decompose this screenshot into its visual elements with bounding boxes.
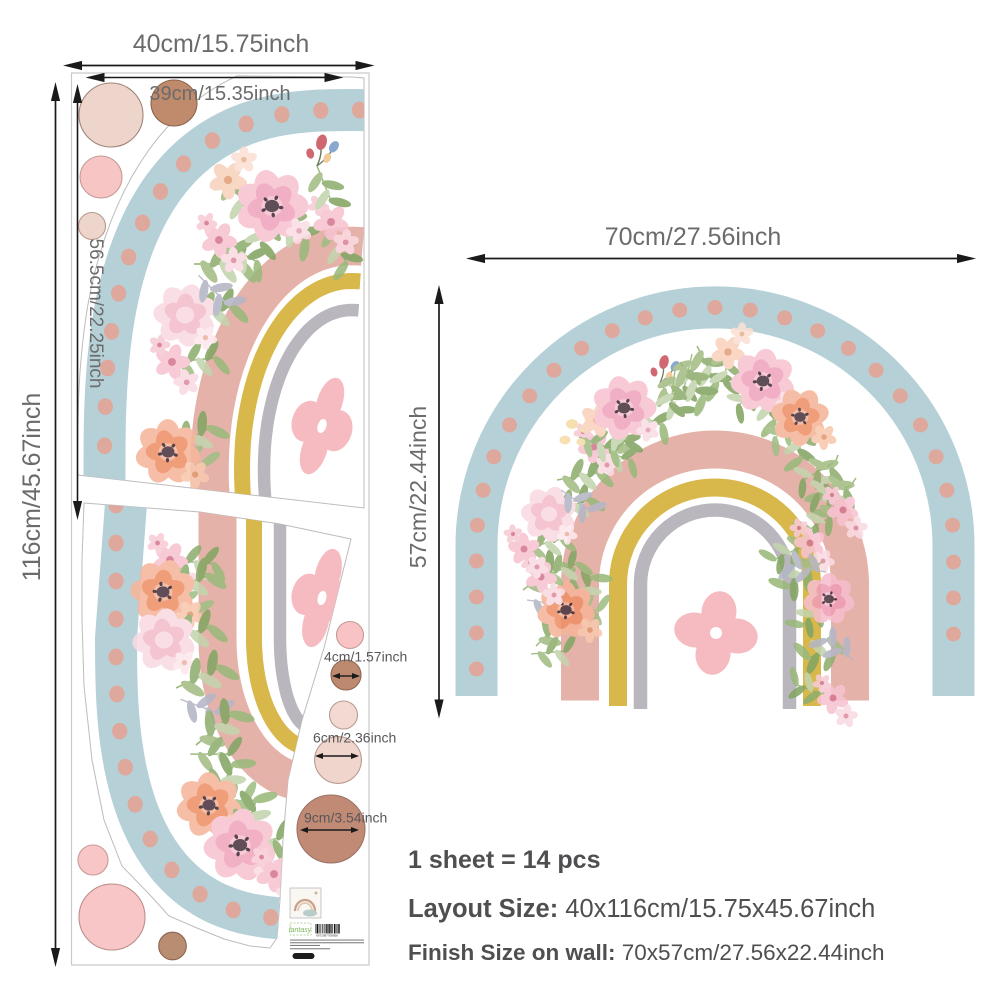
- svg-text:1 sheet = 14 pcs: 1 sheet = 14 pcs: [408, 846, 600, 874]
- svg-text:70cm/27.56inch: 70cm/27.56inch: [605, 223, 782, 251]
- svg-text:6972087708958: 6972087708958: [316, 934, 338, 938]
- svg-text:Layout Size: 40x116cm/15.75x45: Layout Size: 40x116cm/15.75x45.67inch: [408, 895, 875, 923]
- svg-text:57cm/22.44inch: 57cm/22.44inch: [405, 406, 431, 568]
- svg-text:39cm/15.35inch: 39cm/15.35inch: [149, 83, 290, 105]
- svg-text:6cm/2.36inch: 6cm/2.36inch: [313, 730, 396, 746]
- svg-text:40cm/15.75inch: 40cm/15.75inch: [133, 30, 310, 58]
- svg-text:56.5cm/22.25inch: 56.5cm/22.25inch: [85, 239, 106, 389]
- svg-text:4cm/1.57inch: 4cm/1.57inch: [324, 649, 407, 665]
- svg-text:116cm/45.67inch: 116cm/45.67inch: [18, 393, 46, 582]
- svg-text:9cm/3.54inch: 9cm/3.54inch: [304, 810, 387, 826]
- svg-text:fantasy: fantasy: [289, 927, 312, 934]
- svg-text:Finish Size on wall: 70x57cm/2: Finish Size on wall: 70x57cm/27.56x22.44…: [408, 940, 884, 965]
